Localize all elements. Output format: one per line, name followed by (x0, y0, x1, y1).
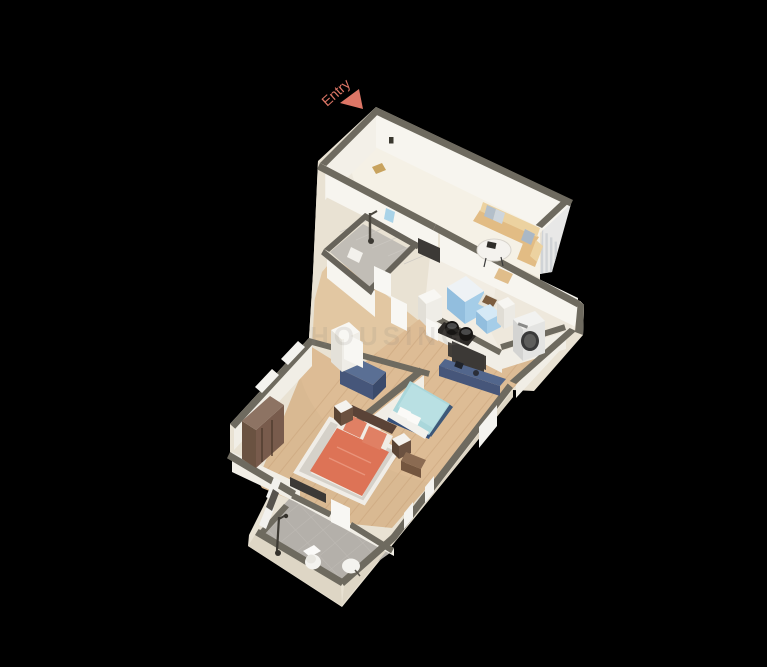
svg-text:HOUSING: HOUSING (310, 321, 466, 351)
